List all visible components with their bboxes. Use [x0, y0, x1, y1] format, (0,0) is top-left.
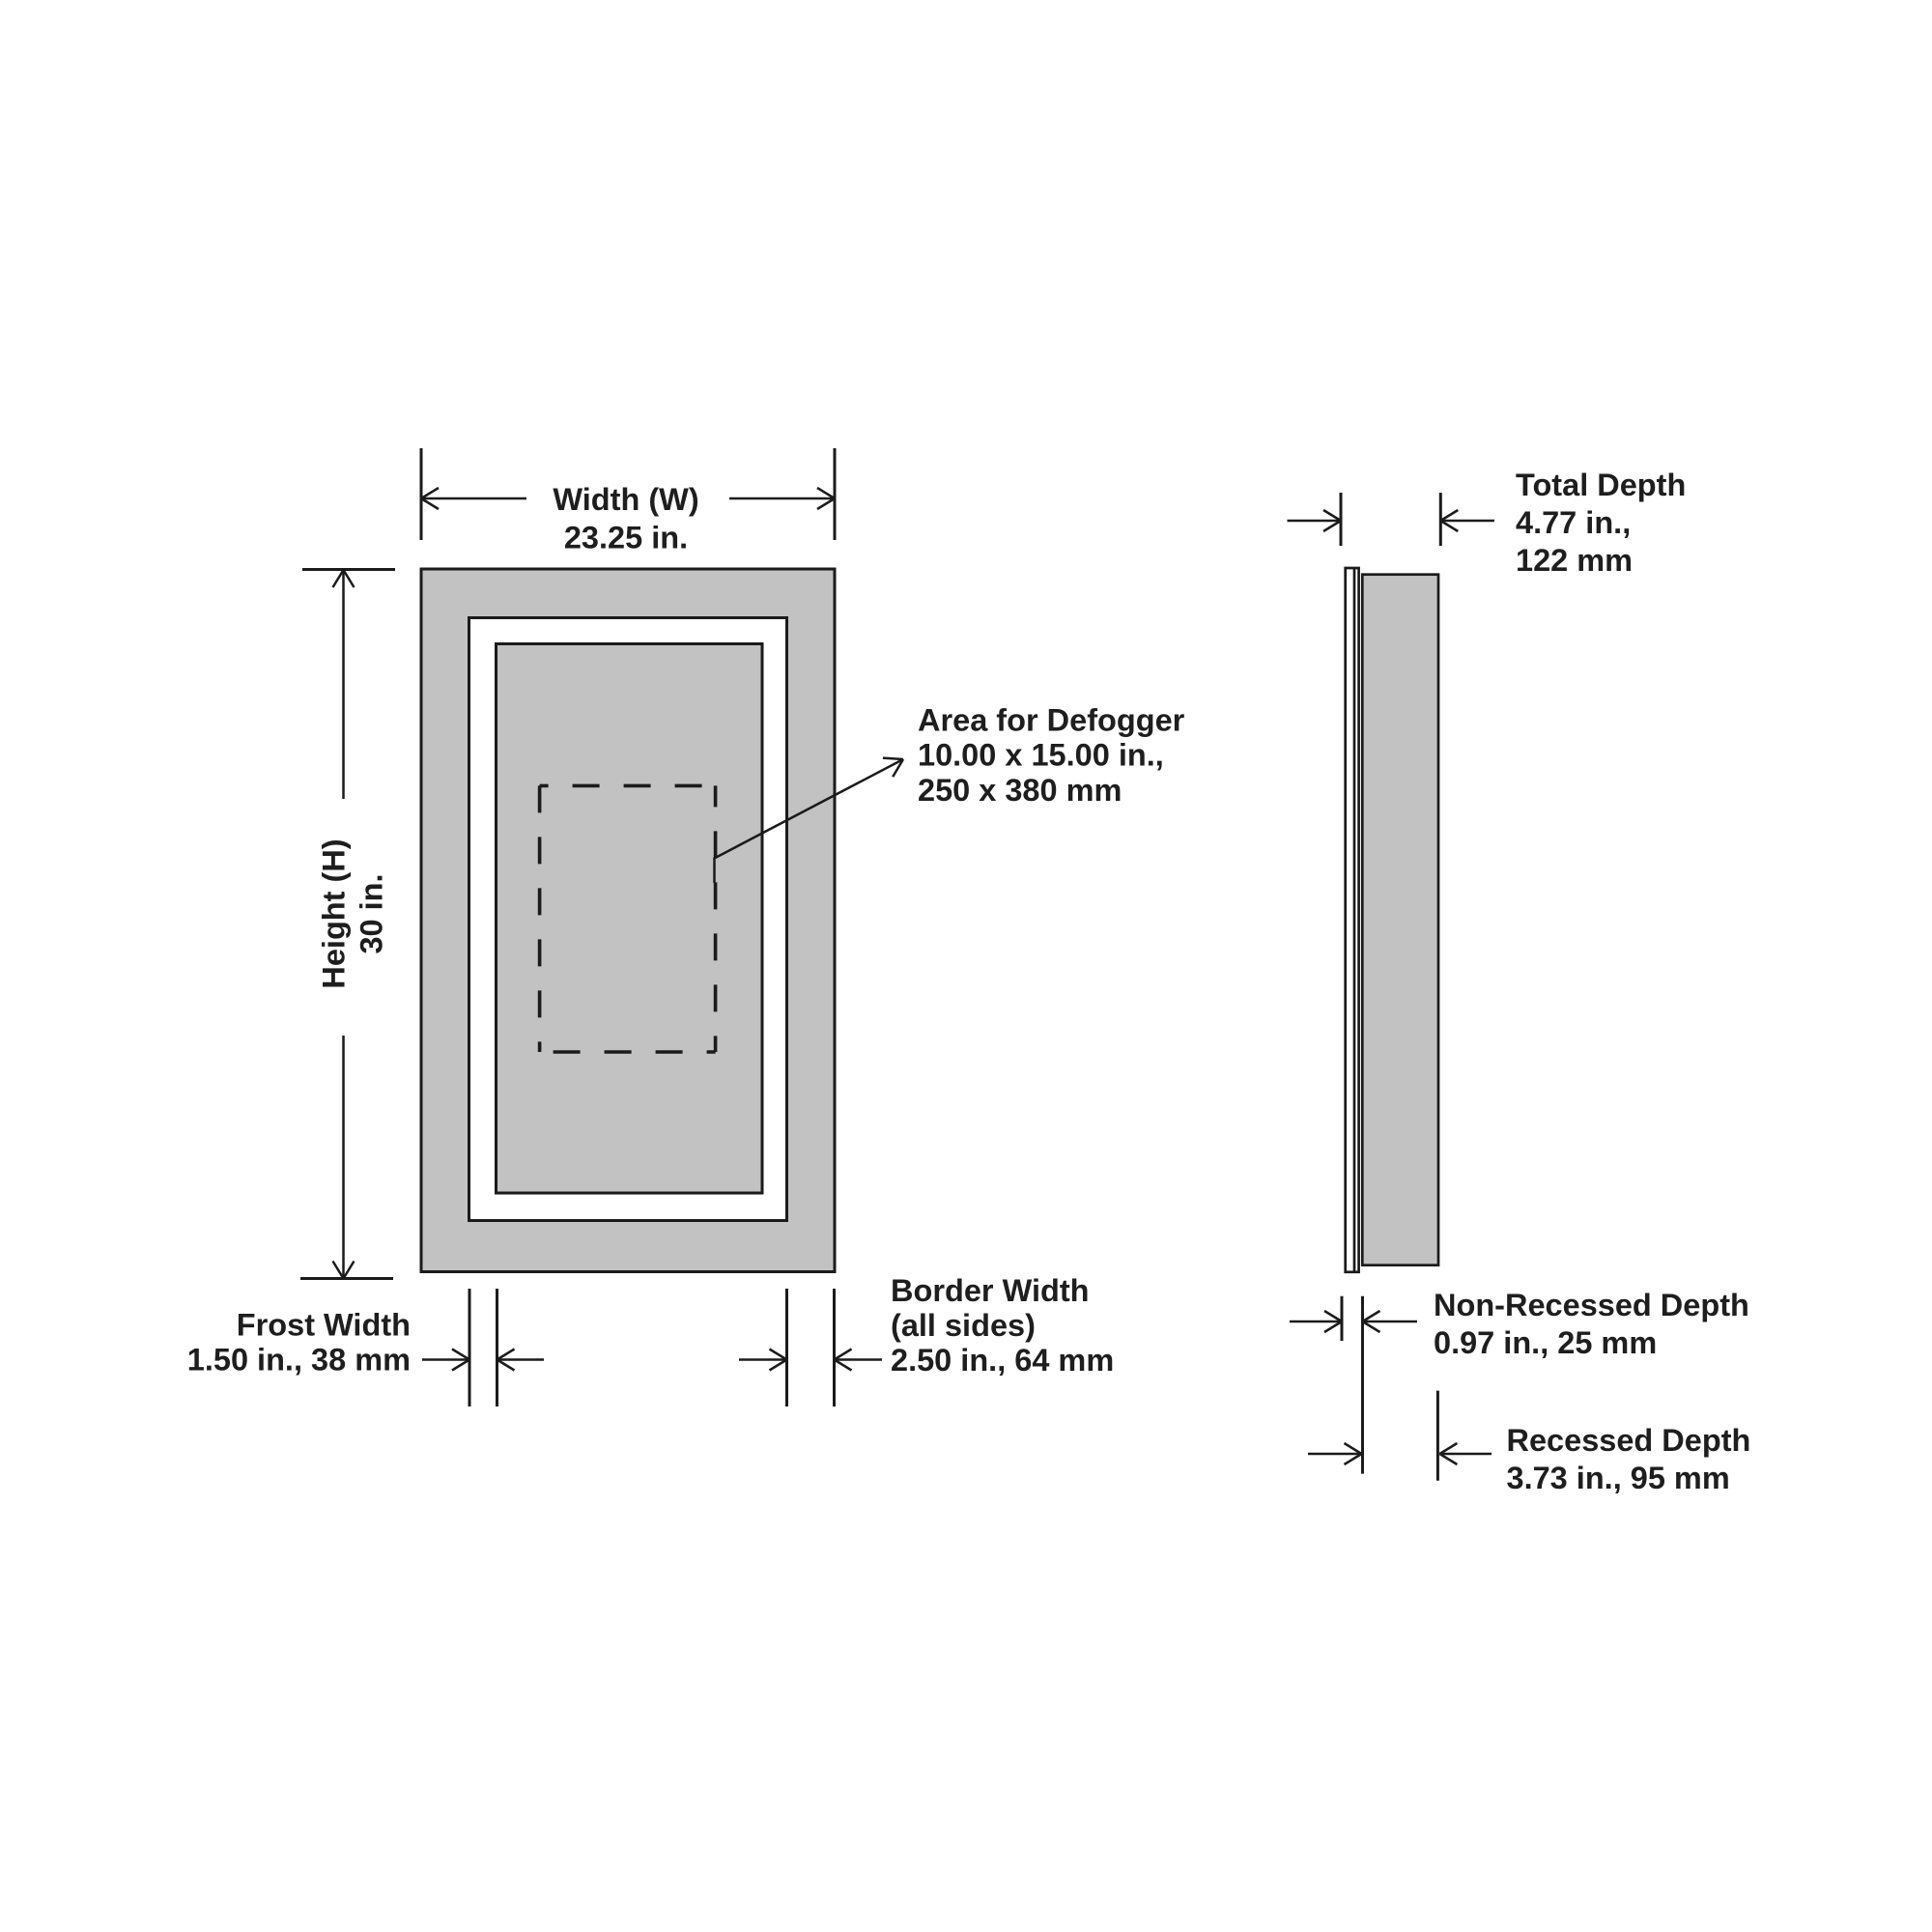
svg-text:0.97 in., 25 mm: 0.97 in., 25 mm: [1434, 1325, 1657, 1360]
svg-text:1.50 in., 38 mm: 1.50 in., 38 mm: [187, 1342, 411, 1377]
svg-text:Non-Recessed Depth: Non-Recessed Depth: [1434, 1288, 1749, 1322]
svg-text:4.77 in.,: 4.77 in.,: [1516, 505, 1631, 540]
svg-text:Recessed Depth: Recessed Depth: [1507, 1423, 1751, 1458]
svg-text:Height (H): Height (H): [316, 838, 351, 988]
svg-text:Border Width: Border Width: [891, 1273, 1090, 1308]
svg-text:2.50 in., 64 mm: 2.50 in., 64 mm: [891, 1343, 1114, 1378]
svg-text:Width (W): Width (W): [553, 482, 698, 517]
svg-text:3.73 in., 95 mm: 3.73 in., 95 mm: [1507, 1461, 1730, 1495]
svg-text:(all sides): (all sides): [891, 1308, 1036, 1343]
svg-text:30 in.: 30 in.: [354, 873, 388, 953]
svg-text:10.00 x 15.00 in.,: 10.00 x 15.00 in.,: [918, 738, 1164, 773]
svg-text:23.25 in.: 23.25 in.: [564, 520, 688, 554]
svg-text:250 x 380 mm: 250 x 380 mm: [918, 773, 1122, 808]
svg-text:Area for Defogger: Area for Defogger: [918, 702, 1185, 737]
svg-text:Total Depth: Total Depth: [1516, 468, 1686, 502]
svg-text:Frost Width: Frost Width: [237, 1307, 411, 1342]
svg-text:122 mm: 122 mm: [1516, 543, 1633, 578]
